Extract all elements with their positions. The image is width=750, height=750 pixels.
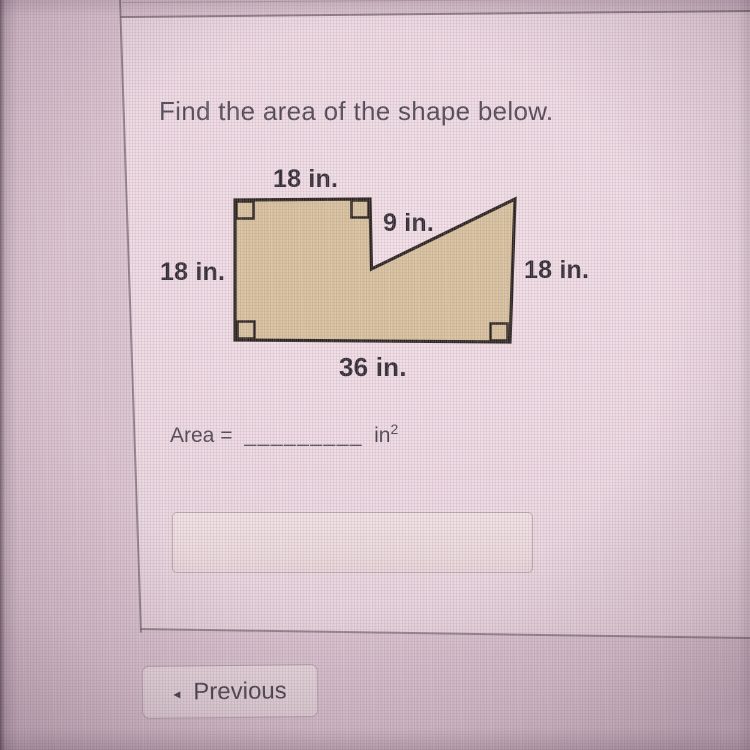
dim-label-top: 18 in. — [273, 165, 338, 194]
area-label: Area = — [170, 424, 232, 448]
area-answer-line: Area = _________ in2 — [170, 424, 398, 448]
unit-exponent: 2 — [390, 421, 398, 437]
screen-photo: Find the area of the shape below. 18 in.… — [0, 0, 750, 750]
unit-text: in — [374, 424, 390, 447]
dim-label-notch: 9 in. — [383, 209, 434, 238]
dim-label-bottom: 36 in. — [339, 352, 407, 383]
answer-input[interactable] — [172, 512, 533, 573]
answer-blank: _________ — [244, 424, 363, 448]
dim-label-left: 18 in. — [160, 258, 225, 287]
previous-label: Previous — [193, 677, 287, 706]
composite-shape-polygon — [235, 199, 515, 342]
previous-button[interactable]: ◂ Previous — [142, 664, 319, 719]
area-unit: in2 — [374, 424, 398, 448]
question-title: Find the area of the shape below. — [159, 96, 553, 127]
dim-label-right: 18 in. — [524, 256, 589, 285]
previous-arrow-icon: ◂ — [173, 686, 180, 700]
